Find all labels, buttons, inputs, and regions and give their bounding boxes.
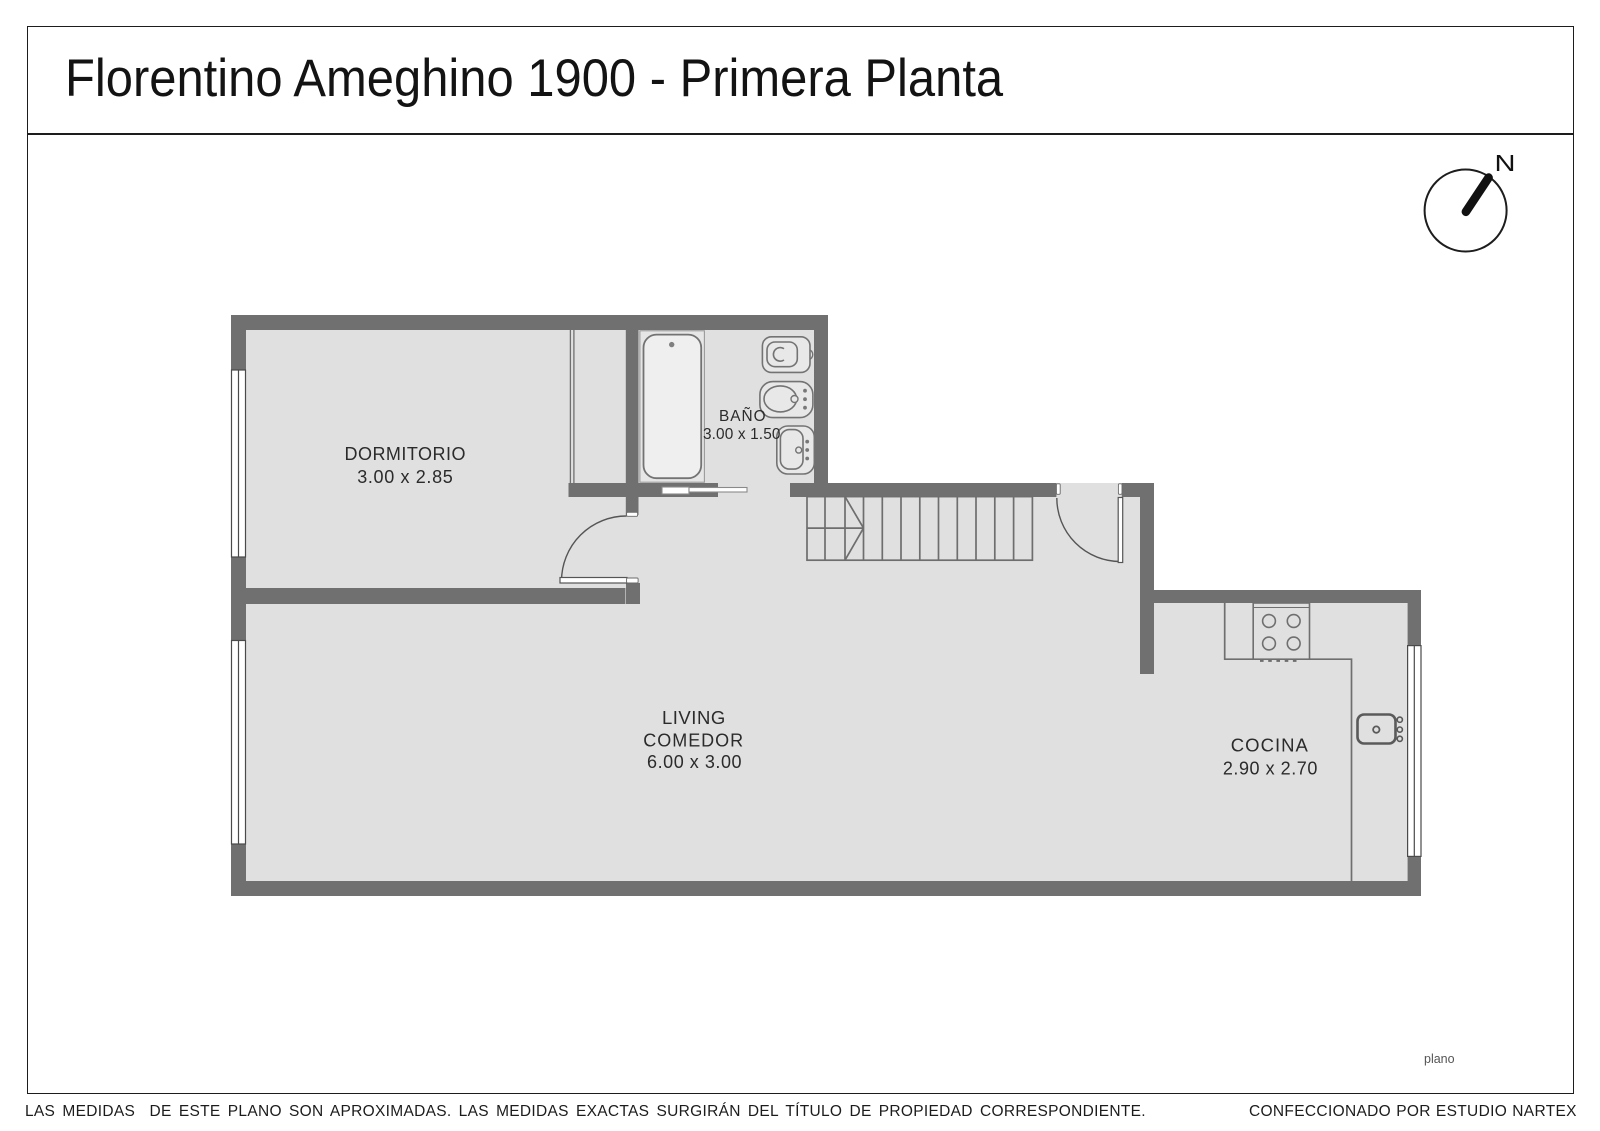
svg-text:COMEDOR: COMEDOR xyxy=(643,730,743,750)
svg-text:3.00 x 1.50: 3.00 x 1.50 xyxy=(703,426,781,443)
svg-text:DORMITORIO: DORMITORIO xyxy=(345,444,466,464)
svg-text:COCINA: COCINA xyxy=(1231,734,1309,755)
svg-text:BAÑO: BAÑO xyxy=(719,408,766,425)
svg-text:3.00 x 2.85: 3.00 x 2.85 xyxy=(357,467,453,487)
svg-text:6.00 x 3.00: 6.00 x 3.00 xyxy=(647,752,742,772)
svg-text:N: N xyxy=(1495,150,1516,176)
svg-text:2.90 x 2.70: 2.90 x 2.70 xyxy=(1223,758,1318,778)
svg-text:LIVING: LIVING xyxy=(662,707,725,728)
